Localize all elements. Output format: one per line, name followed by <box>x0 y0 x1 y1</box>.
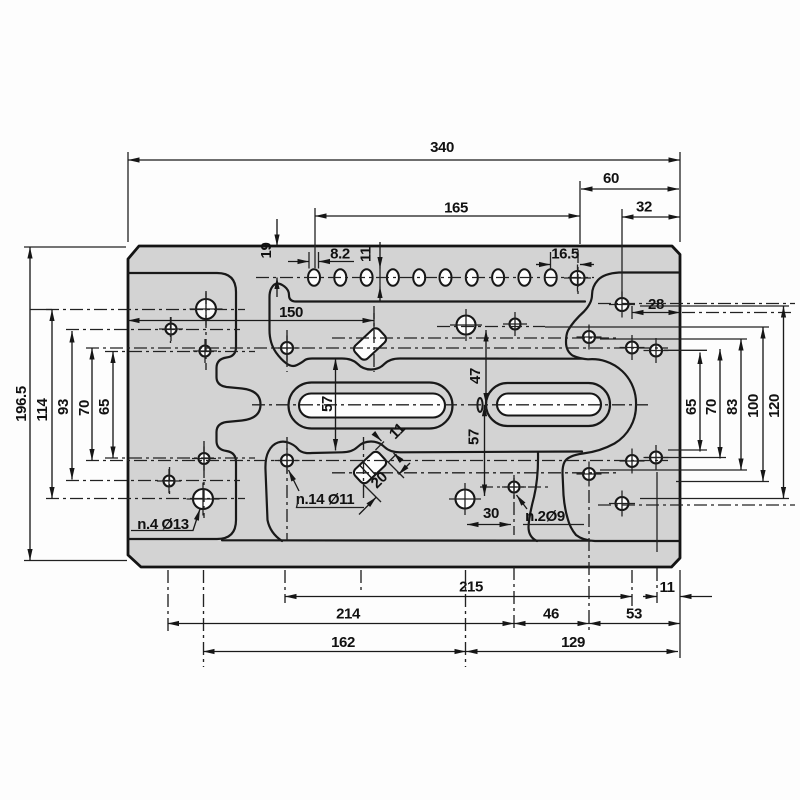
svg-text:214: 214 <box>336 606 361 623</box>
svg-text:196.5: 196.5 <box>13 386 30 422</box>
svg-text:53: 53 <box>626 606 642 623</box>
svg-text:100: 100 <box>745 394 762 418</box>
svg-text:16.5: 16.5 <box>551 246 579 263</box>
svg-text:11: 11 <box>659 579 674 596</box>
svg-text:n.2Ø9: n.2Ø9 <box>525 508 565 525</box>
svg-text:114: 114 <box>34 397 51 421</box>
svg-text:11: 11 <box>358 247 375 262</box>
svg-text:65: 65 <box>683 399 700 415</box>
svg-text:57: 57 <box>319 396 336 412</box>
svg-text:28: 28 <box>648 296 664 313</box>
svg-text:129: 129 <box>561 634 585 651</box>
svg-text:30: 30 <box>483 505 499 522</box>
svg-text:165: 165 <box>444 200 468 217</box>
svg-text:n.14 Ø11: n.14 Ø11 <box>296 491 355 508</box>
svg-text:93: 93 <box>55 399 72 415</box>
svg-text:57: 57 <box>466 429 483 445</box>
svg-text:120: 120 <box>766 394 783 418</box>
svg-text:46: 46 <box>543 606 559 623</box>
svg-text:340: 340 <box>430 139 454 156</box>
svg-text:8.2: 8.2 <box>330 246 350 263</box>
svg-text:162: 162 <box>331 634 355 651</box>
svg-text:32: 32 <box>636 199 652 216</box>
svg-text:83: 83 <box>724 399 741 415</box>
svg-text:150: 150 <box>279 304 303 321</box>
svg-text:60: 60 <box>603 170 619 187</box>
svg-text:65: 65 <box>96 399 113 415</box>
svg-text:19: 19 <box>258 243 275 259</box>
svg-text:215: 215 <box>459 579 483 596</box>
svg-text:47: 47 <box>467 368 484 384</box>
svg-text:70: 70 <box>76 400 93 416</box>
svg-text:70: 70 <box>703 399 720 415</box>
